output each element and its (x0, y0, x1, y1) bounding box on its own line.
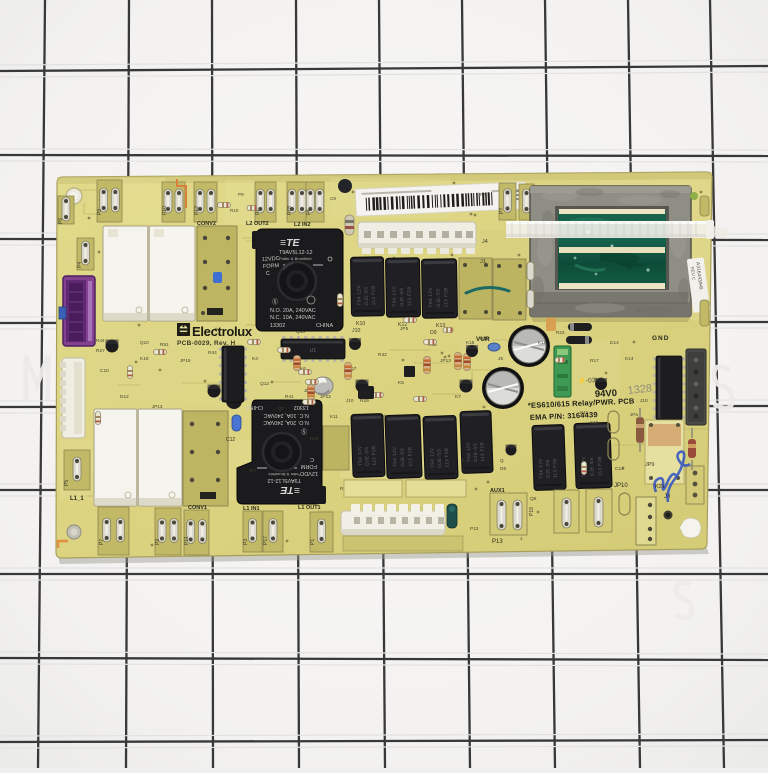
svg-text:L2 IN2: L2 IN2 (294, 222, 311, 228)
svg-text:CONV1: CONV1 (188, 505, 207, 511)
svg-text:T9A 12V: T9A 12V (392, 446, 398, 467)
svg-text:K7: K7 (455, 394, 461, 400)
svg-text:T9A 12V: T9A 12V (429, 447, 435, 468)
svg-text:Potter & Brumfield: Potter & Brumfield (269, 472, 301, 477)
svg-text:T9A 12V: T9A 12V (538, 458, 544, 479)
svg-text:Q10: Q10 (140, 340, 149, 345)
svg-text:≡TE: ≡TE (280, 237, 301, 249)
svg-text:Ⓢ: Ⓢ (301, 427, 307, 435)
svg-text:C12: C12 (226, 437, 235, 443)
svg-text:K10: K10 (356, 321, 365, 327)
svg-text:113 F2B: 113 F2B (371, 285, 376, 305)
svg-text:Potter & Brumfield: Potter & Brumfield (279, 256, 311, 261)
svg-text:K?: K? (250, 468, 256, 473)
svg-text:T9A 12V: T9A 12V (357, 445, 363, 466)
svg-text:L1 IN1: L1 IN1 (243, 506, 260, 512)
svg-text:P13: P13 (492, 539, 503, 545)
svg-text:12VDC: 12VDC (262, 256, 280, 263)
svg-text:113 F2B: 113 F2B (479, 442, 485, 462)
svg-text:P11: P11 (184, 536, 190, 545)
svg-text:113 F2B: 113 F2B (552, 458, 558, 478)
svg-text:N.O. 20A, 240VAC: N.O. 20A, 240VAC (270, 308, 316, 314)
svg-text:P10: P10 (162, 206, 168, 215)
svg-text:U1: U1 (310, 348, 317, 354)
svg-text:JP15: JP15 (180, 358, 191, 363)
svg-text:GND: GND (652, 335, 669, 342)
svg-text:P6: P6 (58, 218, 64, 224)
svg-text:R44: R44 (96, 338, 105, 343)
svg-text:R17: R17 (590, 358, 599, 364)
svg-text:1328: 1328 (627, 382, 653, 396)
svg-text:C8: C8 (330, 196, 336, 201)
svg-text:L2 OUT2: L2 OUT2 (246, 221, 269, 227)
svg-text:R41: R41 (285, 394, 294, 400)
svg-text:113 F2B: 113 F2B (597, 456, 603, 476)
svg-text:P13: P13 (470, 526, 479, 531)
svg-text:R27: R27 (96, 348, 105, 354)
svg-text:P19: P19 (529, 507, 535, 516)
svg-text:JP13: JP13 (152, 404, 163, 409)
svg-text:Q12: Q12 (260, 381, 269, 387)
svg-text:J10: J10 (352, 328, 360, 334)
svg-text:OJE-SS: OJE-SS (363, 286, 368, 305)
svg-text:OJE-SS: OJE-SS (400, 448, 406, 467)
svg-text:R44: R44 (208, 350, 217, 356)
svg-text:113 F2B: 113 F2B (371, 446, 377, 466)
svg-text:R51: R51 (160, 342, 169, 348)
svg-text:CHINA: CHINA (316, 323, 333, 329)
svg-text:113 F2B: 113 F2B (407, 447, 413, 467)
svg-text:L1 OUT1: L1 OUT1 (298, 505, 321, 511)
svg-text:J5: J5 (498, 356, 503, 362)
svg-text:T9A 12V: T9A 12V (356, 285, 361, 306)
svg-text:C14: C14 (615, 466, 624, 472)
svg-text:OJE-SS: OJE-SS (473, 443, 479, 462)
svg-text:J1: J1 (480, 259, 486, 265)
svg-text:N.O. 20A, 240VAC: N.O. 20A, 240VAC (263, 419, 309, 425)
svg-text:P3: P3 (243, 539, 249, 545)
svg-text:D9: D9 (430, 330, 437, 336)
svg-text:113 F2B: 113 F2B (443, 287, 448, 307)
svg-text:12VDC: 12VDC (300, 470, 318, 476)
svg-text:CHINA: CHINA (246, 404, 263, 410)
svg-text:P9: P9 (155, 539, 161, 545)
svg-text:P9: P9 (238, 192, 244, 197)
svg-text:P7: P7 (99, 539, 105, 545)
svg-text:113 F2B: 113 F2B (406, 286, 411, 306)
svg-text:113 F2B: 113 F2B (444, 448, 450, 468)
svg-text:D12: D12 (120, 394, 129, 400)
svg-text:D8: D8 (470, 412, 476, 417)
svg-text:D14: D14 (610, 340, 619, 346)
svg-text:N.C. 10A, 240VAC: N.C. 10A, 240VAC (264, 412, 309, 418)
svg-text:≡TE: ≡TE (279, 484, 300, 496)
svg-text:FORM: FORM (263, 263, 280, 270)
svg-text:K4: K4 (252, 356, 258, 362)
svg-text:K11: K11 (330, 414, 338, 419)
svg-text:P1: P1 (310, 539, 316, 545)
svg-text:C: C (310, 456, 314, 462)
svg-text:J4: J4 (482, 239, 488, 245)
svg-text:K21: K21 (655, 484, 665, 490)
svg-text:T9A 12V: T9A 12V (466, 441, 472, 462)
svg-text:R23: R23 (556, 330, 565, 335)
svg-text:K15: K15 (466, 340, 475, 345)
svg-text:P12: P12 (194, 206, 200, 215)
svg-text:K17: K17 (538, 340, 547, 345)
svg-text:OJE-SS: OJE-SS (399, 287, 404, 306)
svg-text:JP10: JP10 (614, 483, 628, 489)
svg-text:OJE-SS: OJE-SS (435, 288, 440, 307)
svg-text:FORM: FORM (300, 463, 317, 469)
svg-text:Q5: Q5 (530, 496, 537, 502)
svg-text:1: 1 (520, 536, 523, 541)
svg-text:T9A 12V: T9A 12V (428, 287, 433, 308)
svg-text:D6: D6 (500, 466, 506, 472)
svg-text:K14: K14 (625, 356, 634, 362)
svg-text:N.C. 10A, 240VAC: N.C. 10A, 240VAC (270, 315, 315, 321)
svg-text:K5: K5 (398, 380, 404, 386)
svg-text:P?: P? (499, 208, 505, 214)
svg-text:F2: F2 (480, 192, 486, 197)
svg-text:OJE-SS: OJE-SS (545, 459, 551, 478)
svg-text:P5: P5 (64, 480, 70, 486)
svg-text:R42: R42 (310, 436, 319, 441)
svg-text:P17: P17 (263, 536, 269, 545)
svg-text:OJE-SS: OJE-SS (364, 447, 370, 466)
svg-text:P4: P4 (77, 262, 83, 268)
svg-text:J10: J10 (346, 398, 354, 403)
svg-text:P8: P8 (97, 209, 103, 215)
svg-text:Electrolux: Electrolux (192, 324, 253, 339)
svg-text:P18: P18 (287, 206, 293, 215)
svg-text:F4: F4 (306, 209, 312, 215)
svg-text:R10: R10 (230, 208, 239, 213)
svg-text:13302: 13302 (270, 323, 285, 329)
svg-text:OJE-SS: OJE-SS (437, 449, 443, 468)
svg-text:Q7: Q7 (278, 406, 285, 411)
svg-text:VUR: VUR (476, 336, 490, 343)
svg-text:C: C (266, 271, 270, 277)
svg-text:R42: R42 (378, 352, 387, 358)
svg-text:K18: K18 (140, 356, 149, 362)
svg-text:JPa: JPa (630, 412, 638, 417)
svg-text:JP13: JP13 (440, 358, 451, 364)
svg-text:Ⓢ: Ⓢ (272, 298, 278, 306)
svg-text:JP9: JP9 (645, 462, 654, 468)
svg-text:J10: J10 (640, 398, 648, 404)
svg-text:K18: K18 (590, 420, 599, 425)
svg-text:OJE-SS: OJE-SS (589, 457, 595, 476)
svg-text:L1_1: L1_1 (70, 496, 84, 502)
svg-text:T9A 12V: T9A 12V (391, 286, 396, 307)
svg-text:C10: C10 (100, 368, 109, 374)
